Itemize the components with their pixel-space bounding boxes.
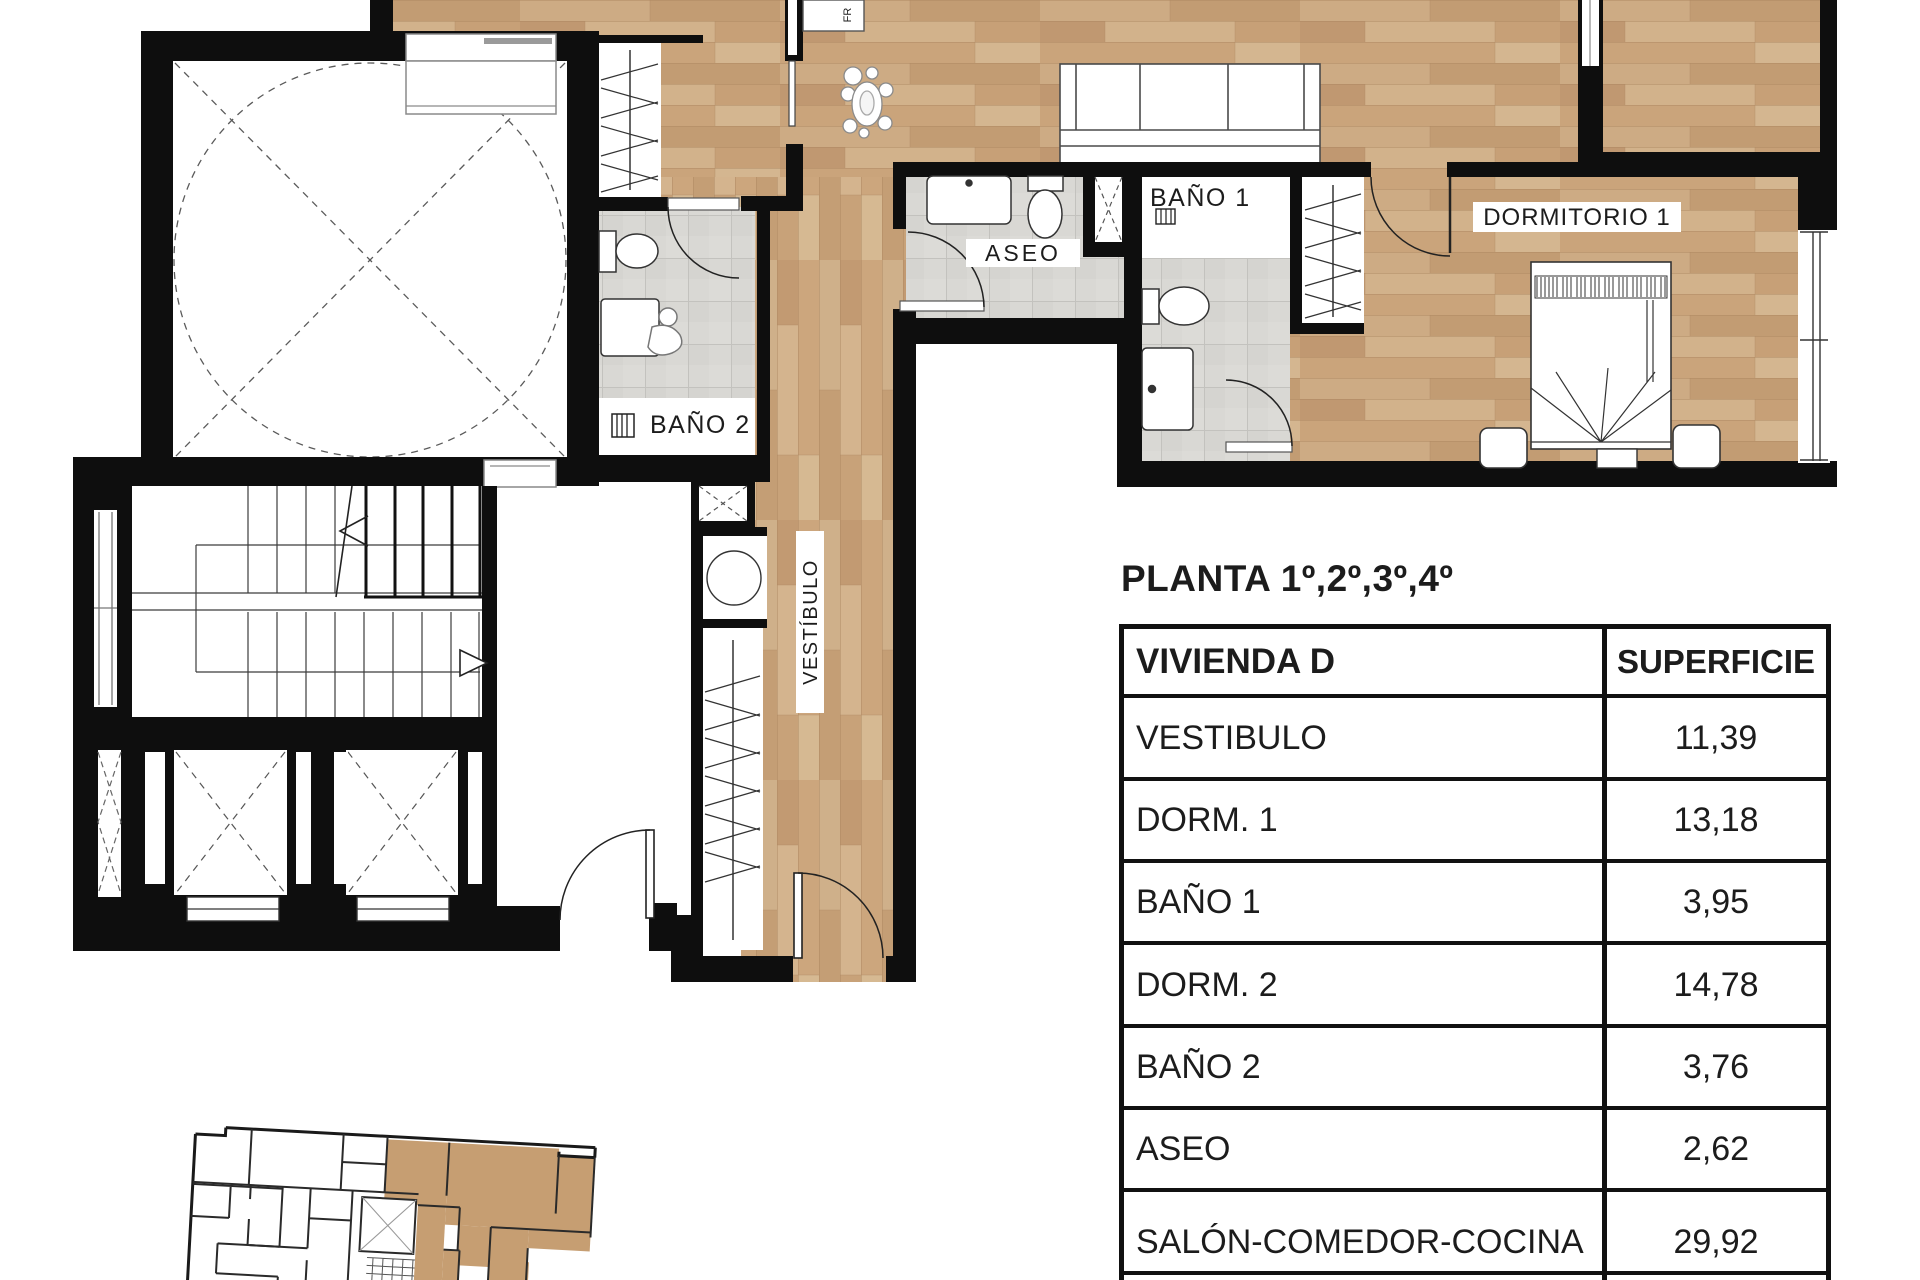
svg-text:PLANTA 1º,2º,3º,4º: PLANTA 1º,2º,3º,4º xyxy=(1121,558,1453,599)
svg-text:ASEO: ASEO xyxy=(985,240,1061,266)
svg-text:BAÑO 2: BAÑO 2 xyxy=(650,410,751,439)
svg-text:13,18: 13,18 xyxy=(1673,801,1758,839)
svg-text:VESTIBULO: VESTIBULO xyxy=(1136,719,1327,757)
svg-text:3,76: 3,76 xyxy=(1683,1048,1749,1086)
svg-text:DORM. 1: DORM. 1 xyxy=(1136,801,1278,839)
svg-text:VESTÍBULO: VESTÍBULO xyxy=(799,559,822,685)
svg-text:VIVIENDA D: VIVIENDA D xyxy=(1136,642,1335,681)
svg-text:SUPERFICIE: SUPERFICIE xyxy=(1617,643,1815,680)
svg-text:3,95: 3,95 xyxy=(1683,883,1749,921)
svg-text:11,39: 11,39 xyxy=(1675,719,1758,757)
svg-text:14,78: 14,78 xyxy=(1673,966,1758,1004)
svg-text:DORM. 2: DORM. 2 xyxy=(1136,966,1278,1004)
svg-text:BAÑO 2: BAÑO 2 xyxy=(1136,1048,1261,1086)
svg-text:BAÑO 1: BAÑO 1 xyxy=(1150,183,1251,212)
svg-text:29,92: 29,92 xyxy=(1673,1223,1758,1261)
svg-text:FR: FR xyxy=(842,8,854,23)
svg-text:DORMITORIO 1: DORMITORIO 1 xyxy=(1483,204,1671,231)
svg-text:BAÑO 1: BAÑO 1 xyxy=(1136,883,1261,921)
svg-text:2,62: 2,62 xyxy=(1683,1130,1749,1168)
svg-text:SALÓN-COMEDOR-COCINA: SALÓN-COMEDOR-COCINA xyxy=(1136,1223,1584,1261)
svg-text:ASEO: ASEO xyxy=(1136,1130,1230,1168)
